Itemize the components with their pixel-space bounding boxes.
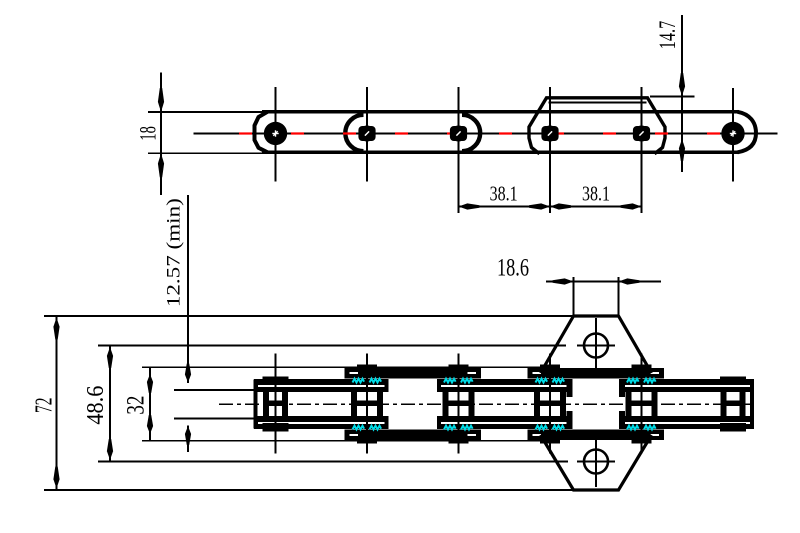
svg-text:18: 18 xyxy=(135,126,160,141)
svg-text:18.6: 18.6 xyxy=(497,254,529,281)
svg-text:14.7: 14.7 xyxy=(655,21,680,50)
svg-text:72: 72 xyxy=(32,398,58,414)
svg-text:38.1: 38.1 xyxy=(582,181,610,205)
svg-text:12.57 (min): 12.57 (min) xyxy=(164,198,185,307)
svg-text:38.1: 38.1 xyxy=(490,181,518,205)
svg-text:48.6: 48.6 xyxy=(83,386,109,425)
svg-text:32: 32 xyxy=(123,396,150,415)
